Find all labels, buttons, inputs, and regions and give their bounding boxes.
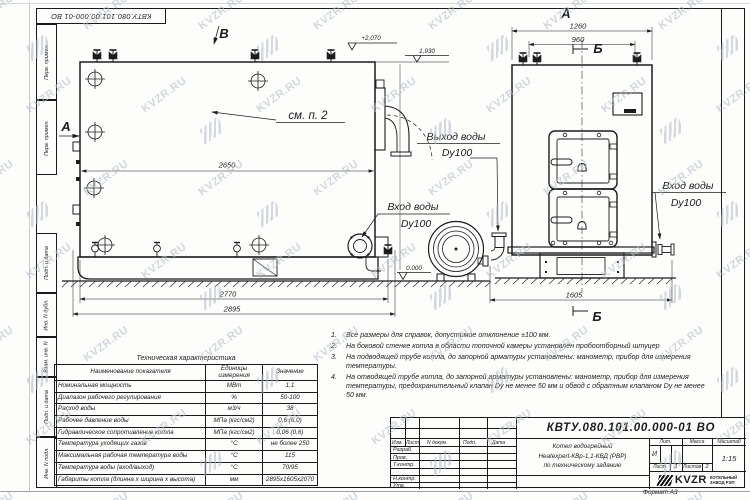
note-number: 1.	[331, 331, 346, 340]
tb-line	[419, 418, 420, 489]
inlet-front-label: Вход воды	[663, 180, 714, 192]
doc-number-stamp: КВТУ.080.101.00.000-01 ВО	[36, 8, 166, 24]
tb-line	[487, 418, 488, 489]
tb-row-tkontr: Т.контр.	[393, 462, 415, 468]
tb-listov-value: 2	[702, 463, 712, 471]
inlet-side-label: Вход воды	[388, 201, 439, 213]
kvzr-logo-text: KVZR	[675, 474, 707, 486]
view-arrow-a: А	[60, 119, 70, 134]
elevation-0: 0.000	[406, 265, 422, 272]
note-number: 2.	[331, 342, 346, 351]
spec-cell: 115	[263, 451, 318, 463]
tb-hdr-list: Лист	[406, 440, 419, 446]
tb-line	[671, 445, 672, 463]
spec-cell: Номинальная мощность	[55, 381, 206, 393]
spec-cell: мм	[206, 474, 263, 486]
note-text: Все размеры для справок, допустимое откл…	[346, 331, 714, 340]
inlet-side-dn-label: Dy100	[401, 218, 432, 230]
tb-row-razrab: Разраб.	[393, 447, 413, 453]
tb-row-prov: Пров.	[393, 455, 407, 461]
margin-label: Взам. инв. N	[44, 341, 50, 372]
spec-cell: °С	[206, 462, 263, 474]
section-label-b-bottom: Б	[592, 309, 601, 324]
margin-label: Инв. N дубл.	[44, 299, 50, 330]
spec-cell: Расход воды	[55, 404, 206, 416]
tb-line	[660, 445, 661, 463]
spec-cell: 0,06 (0,6)	[263, 427, 318, 439]
tb-row-utv: Утв.	[393, 483, 405, 489]
tb-list-label: Лист	[649, 463, 670, 471]
dim-2770: 2770	[219, 290, 238, 299]
margin-label: Перв. примен.	[44, 44, 50, 80]
spec-cell: Гидравлическое сопротивление котла	[55, 427, 206, 439]
callout-see-p2: см. п. 2	[288, 110, 328, 122]
section-label-b-top: Б	[593, 41, 602, 56]
margin-box-inv-dubl: Инв. N дубл.	[36, 293, 57, 337]
tb-hdr-data: Дата	[492, 440, 505, 446]
tb-lit-label: Лит.	[649, 438, 682, 445]
note-1: 1. Все размеры для справок, допустимое о…	[331, 331, 714, 340]
side-view	[59, 26, 491, 317]
spec-cell: 0,6 (6,0)	[263, 416, 318, 428]
tb-hdr-doc: N докум.	[427, 440, 447, 446]
spec-cell: 50-100	[263, 392, 318, 404]
spec-cell: 38	[263, 404, 318, 416]
outlet-dn-label: Dy100	[442, 147, 473, 159]
note-number: 3.	[331, 353, 346, 371]
tb-hdr-izm: Изм.	[392, 440, 403, 446]
outlet-label: Выход воды	[426, 131, 485, 143]
dim-1260: 1260	[570, 22, 588, 31]
inlet-front-dn-label: Dy100	[671, 197, 702, 209]
spec-cell: 1,1	[263, 381, 318, 393]
note-4: 4. На отводящей трубе котла, до запорной…	[331, 373, 714, 400]
tb-line	[391, 482, 516, 483]
dim-2895: 2895	[223, 305, 242, 314]
spec-cell: °С	[206, 439, 263, 451]
margin-label: Перв. примен.	[44, 120, 50, 156]
company-name-line2: ЗАВОД РЭП	[710, 480, 737, 485]
spec-row: Номинальная мощность МВт 1,1	[55, 381, 318, 393]
company-name: КОТЕЛЬНЫЙ ЗАВОД РЭП	[710, 475, 737, 486]
margin-label: Инв. N подл.	[44, 447, 50, 479]
tb-doc-name-line3: по техническому заданию	[544, 461, 622, 470]
spec-cell: м3/ч	[206, 404, 263, 416]
dim-2650: 2650	[218, 161, 237, 170]
company-logo: KVZR КОТЕЛЬНЫЙ ЗАВОД РЭП	[649, 471, 746, 489]
tb-list-value: 1	[670, 463, 682, 471]
margin-label: Подп. и дата	[44, 390, 50, 424]
tb-masshtab-value: 1:15	[712, 445, 746, 471]
note-text: На отводящей трубе котла, до запорной ар…	[346, 373, 714, 400]
spec-cell: МВт	[206, 381, 263, 393]
dim-1605: 1605	[566, 291, 584, 300]
tb-hdr-podp: Подп.	[463, 440, 476, 446]
spec-cell: Габариты котла (длинна х ширина х высота…	[55, 474, 206, 486]
tb-line	[391, 468, 516, 469]
notes-block: 1. Все размеры для справок, допустимое о…	[331, 331, 714, 402]
note-3: 3. На подводящей трубе котла, до запорно…	[331, 353, 714, 371]
tb-doc-name-line2: Heatexpert-КВр-1,1-КВД (РВР)	[538, 452, 626, 461]
spec-row: Габариты котла (длинна х ширина х высота…	[55, 474, 318, 486]
tb-lit-value: И	[649, 445, 660, 463]
margin-box-perv-primen: Перв. примен.	[36, 24, 57, 100]
spec-cell: °С	[206, 451, 263, 463]
margin-box-sprav: Перв. примен.	[36, 100, 57, 175]
note-2: 2. На боковой стенке котла в области топ…	[331, 342, 714, 351]
margin-label: Подп. и дата	[44, 246, 50, 280]
spec-row: Температура уходящих газов °С не более 2…	[55, 439, 318, 451]
spec-section: Техническая характеристика Наименование …	[54, 355, 318, 486]
spec-row: Максимальная рабочая температура воды °С…	[55, 451, 318, 463]
tb-line	[516, 475, 649, 476]
margin-box-podp-data-1: Подп. и дата	[36, 233, 57, 293]
spec-cell: 2895х1605х2070	[263, 474, 318, 486]
spec-header-cell: Единицы измерения	[206, 365, 263, 381]
spec-cell: 70/95	[263, 462, 318, 474]
note-text: На подводящей трубе котла, до запорной а…	[346, 353, 714, 371]
format-label: Формат А3	[643, 489, 677, 496]
drawing-sheet: КВТУ.080.101.00.000-01 ВО Перв. примен. …	[0, 0, 750, 500]
title-block: КВТУ.080.101.00.000-01 ВО Изм. Лист N до…	[390, 417, 745, 488]
spec-header-cell: Значение	[263, 365, 318, 381]
elevation-2070: +2,070	[361, 35, 381, 42]
tb-massa-label: Масса	[682, 438, 712, 445]
spec-cell: не более 250	[263, 439, 318, 451]
spec-row: Рабочее давление воды МПа (кгс/см2) 0,6 …	[55, 416, 318, 428]
tb-doc-name: Котел водогрейный Heatexpert-КВр-1,1-КВД…	[516, 438, 649, 475]
spec-row: Температура воды (вход/выход) °С 70/95	[55, 462, 318, 474]
spec-cell: Максимальная рабочая температура воды	[55, 451, 206, 463]
doc-number-stamp-text: КВТУ.080.101.00.000-01 ВО	[51, 12, 151, 21]
spec-table: Наименование показателя Единицы измерени…	[54, 364, 318, 486]
blower-fan	[429, 222, 484, 282]
spec-cell: МПа (кгс/см2)	[206, 427, 263, 439]
spec-header-row: Наименование показателя Единицы измерени…	[55, 365, 318, 381]
front-view	[417, 27, 726, 316]
tb-doc-number: КВТУ.080.101.00.000-01 ВО	[516, 418, 746, 438]
tb-masshtab-label: Масштаб	[712, 438, 746, 445]
tb-doc-name-line1: Котел водогрейный	[553, 442, 613, 451]
note-text: На боковой стенке котла в области топочн…	[346, 342, 714, 351]
tb-listov-label: Листов	[682, 463, 702, 471]
view-label-a: А	[560, 6, 570, 21]
note-number: 4.	[331, 373, 346, 400]
spec-row: Расход воды м3/ч 38	[55, 404, 318, 416]
tb-line	[391, 453, 516, 454]
spec-row: Диапазон рабочего регулирования % 50-100	[55, 392, 318, 404]
spec-header-cell: Наименование показателя	[55, 365, 206, 381]
spec-cell: Температура уходящих газов	[55, 439, 206, 451]
tb-row-nkontr: Н.контр.	[393, 476, 416, 482]
spec-cell: %	[206, 392, 263, 404]
view-label-b: В	[219, 26, 228, 41]
tb-line	[391, 428, 516, 429]
tb-line	[459, 418, 460, 489]
spec-cell: МПа (кгс/см2)	[206, 416, 263, 428]
spec-cell: Рабочее давление воды	[55, 416, 206, 428]
elevation-1930: 1,930	[419, 48, 435, 55]
kvzr-logo-icon	[657, 475, 674, 486]
spec-row: Гидравлическое сопротивление котла МПа (…	[55, 427, 318, 439]
spec-title: Техническая характеристика	[54, 355, 318, 362]
spec-cell: Диапазон рабочего регулирования	[55, 392, 206, 404]
dim-960: 960	[572, 35, 585, 44]
spec-cell: Температура воды (вход/выход)	[55, 462, 206, 474]
